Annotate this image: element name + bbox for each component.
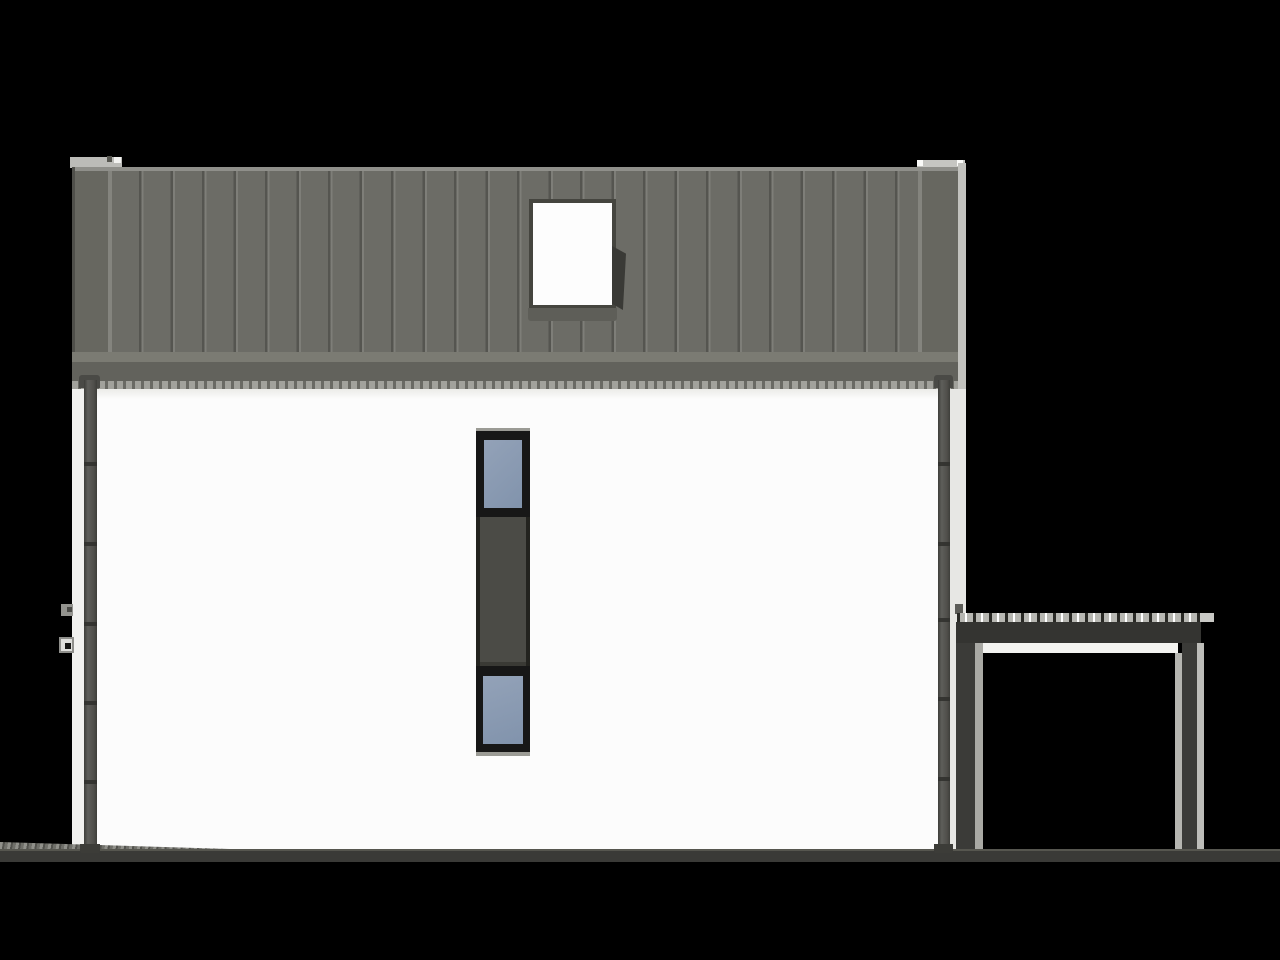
- roof-standing-seams: [112, 171, 918, 352]
- carport-roof-edge-tail: [1200, 613, 1214, 622]
- downpipe-left-joint: [84, 622, 97, 626]
- downpipe-right-joint: [938, 542, 950, 546]
- downpipe-right-joint: [938, 462, 950, 466]
- window-strip-rail-right: [526, 517, 530, 666]
- downpipe-right-joint: [938, 618, 950, 622]
- carport-post-right: [1182, 643, 1197, 851]
- roof-barge-band-right: [922, 171, 958, 352]
- roof-right-side-return: [958, 163, 966, 389]
- elevation-canvas: [0, 0, 1280, 960]
- gutter-line: [72, 381, 958, 389]
- carport-roof-speckled-edge: [957, 613, 1208, 622]
- ground-line: [0, 849, 1280, 862]
- carport-post-right-highlight: [1197, 643, 1204, 851]
- carport-post-left: [956, 643, 975, 852]
- roof-window-sill: [528, 308, 617, 321]
- window-strip-spandrel-panel: [480, 517, 526, 666]
- roof-fascia: [72, 362, 958, 381]
- carport-beam: [956, 622, 1201, 643]
- carport-post-right-inner-highlight: [1175, 653, 1182, 851]
- pipe-bracket-upper-bolt: [67, 607, 72, 612]
- window-bottom-glass: [483, 676, 523, 744]
- gable-cap-right-notch-left: [917, 160, 923, 166]
- roof-eave-light-strip: [72, 352, 958, 362]
- downpipe-left-foot: [80, 844, 100, 853]
- downpipe-right: [938, 380, 950, 852]
- downpipe-left-joint: [84, 701, 97, 705]
- pipe-bracket-lower-bolt: [65, 643, 71, 649]
- downpipe-right-joint: [938, 777, 950, 781]
- facade-left-side-return: [72, 389, 84, 851]
- carport-post-left-highlight: [975, 643, 983, 849]
- carport-underside-light-line: [983, 643, 1178, 653]
- downpipe-right-foot: [934, 844, 953, 853]
- gable-cap-left-notch: [114, 157, 121, 163]
- downpipe-left-joint: [84, 462, 97, 466]
- roof-window: [529, 199, 616, 309]
- roof-barge-band-left: [75, 171, 108, 352]
- gable-cap-left-tick: [107, 156, 112, 162]
- downpipe-right-joint: [938, 697, 950, 701]
- window-top-glass: [484, 440, 522, 508]
- downpipe-left-joint: [84, 780, 97, 784]
- window-strip-bottom-cap: [476, 752, 530, 756]
- facade-top-shadow: [84, 389, 950, 399]
- downpipe-left: [84, 380, 97, 852]
- downpipe-left-joint: [84, 542, 97, 546]
